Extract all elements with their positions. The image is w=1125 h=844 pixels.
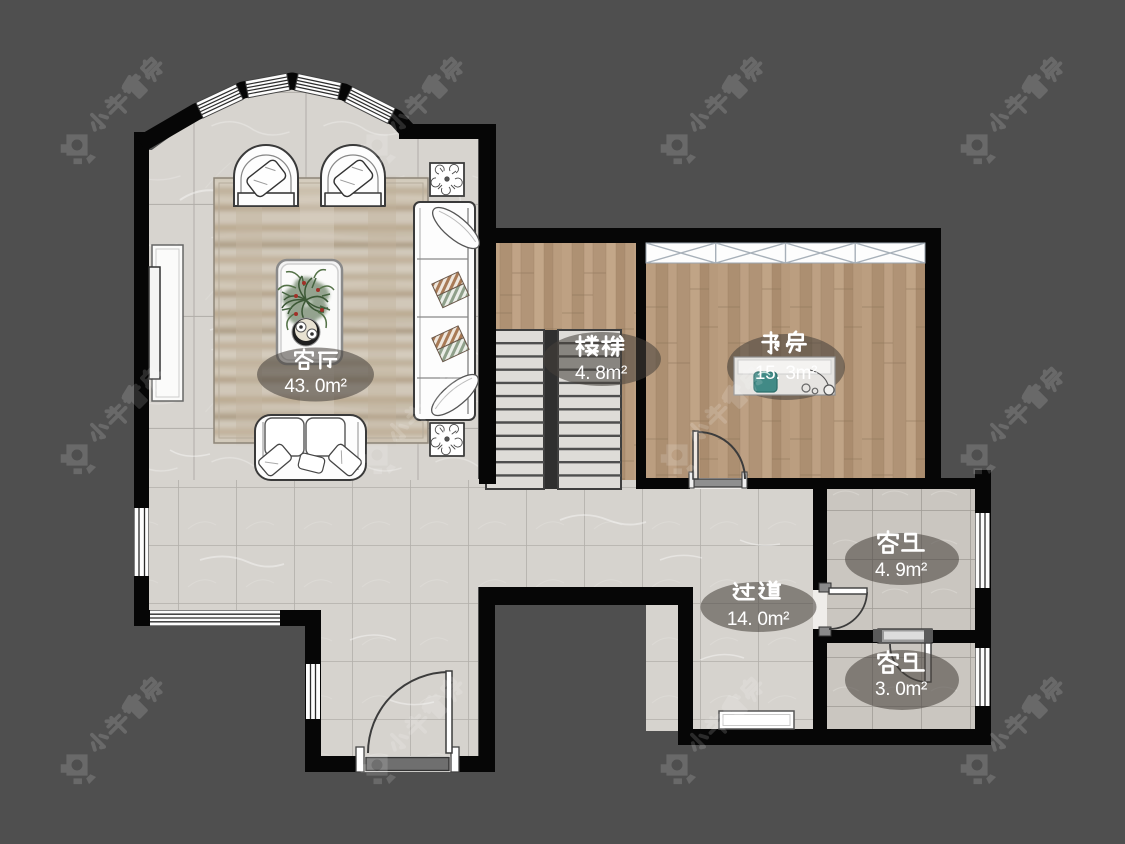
svg-text:4. 9m²: 4. 9m² — [875, 560, 927, 581]
svg-text:43. 0m²: 43. 0m² — [284, 376, 346, 397]
svg-text:14. 0m²: 14. 0m² — [727, 609, 789, 630]
svg-text:4. 8m²: 4. 8m² — [575, 363, 627, 384]
svg-text:3. 0m²: 3. 0m² — [875, 679, 927, 700]
svg-text:15. 3m²: 15. 3m² — [755, 363, 817, 384]
